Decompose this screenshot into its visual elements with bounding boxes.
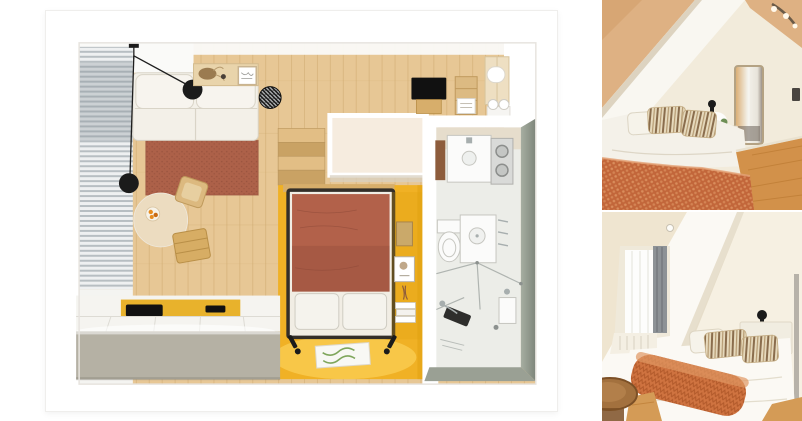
attic-bedroom-photo-top — [602, 0, 802, 210]
wall-shelf — [194, 64, 259, 86]
dining-chair — [172, 228, 211, 263]
pillow — [343, 294, 387, 330]
bathroom — [422, 115, 535, 384]
washer-dryer — [491, 138, 513, 184]
striped-pillow — [681, 110, 717, 138]
attic-bedroom-photo-bottom — [602, 212, 802, 421]
floor-plan-svg — [46, 11, 557, 411]
striped-pillow — [647, 106, 686, 134]
photo-bottom-svg — [602, 212, 802, 421]
interior-collage — [0, 0, 802, 421]
ceiling-spotlight — [667, 225, 674, 232]
hall-wardrobe — [485, 57, 509, 105]
tv — [411, 78, 446, 114]
vanity — [447, 135, 491, 182]
sleeping-alcove — [273, 184, 427, 379]
gray-curtain — [653, 246, 667, 333]
photo-top-svg — [602, 0, 802, 210]
sink — [205, 306, 225, 313]
pillow — [295, 294, 339, 330]
green-mat — [315, 342, 370, 368]
bath-mat — [435, 140, 445, 180]
cooktop — [126, 305, 163, 317]
double-bed — [288, 190, 393, 337]
wardrobe-block — [330, 115, 427, 182]
wall-sconce — [487, 67, 505, 83]
wooden-stairs — [278, 128, 325, 185]
niche-shelving — [392, 192, 425, 339]
floor-plan-image — [45, 10, 558, 412]
kitchen-counter — [76, 296, 280, 381]
wall-switch — [792, 88, 800, 101]
striped-pouf — [259, 87, 281, 109]
toilet — [437, 220, 462, 262]
mirror-rail — [794, 274, 799, 419]
striped-pillow — [741, 335, 779, 363]
media-shelf — [455, 77, 477, 115]
